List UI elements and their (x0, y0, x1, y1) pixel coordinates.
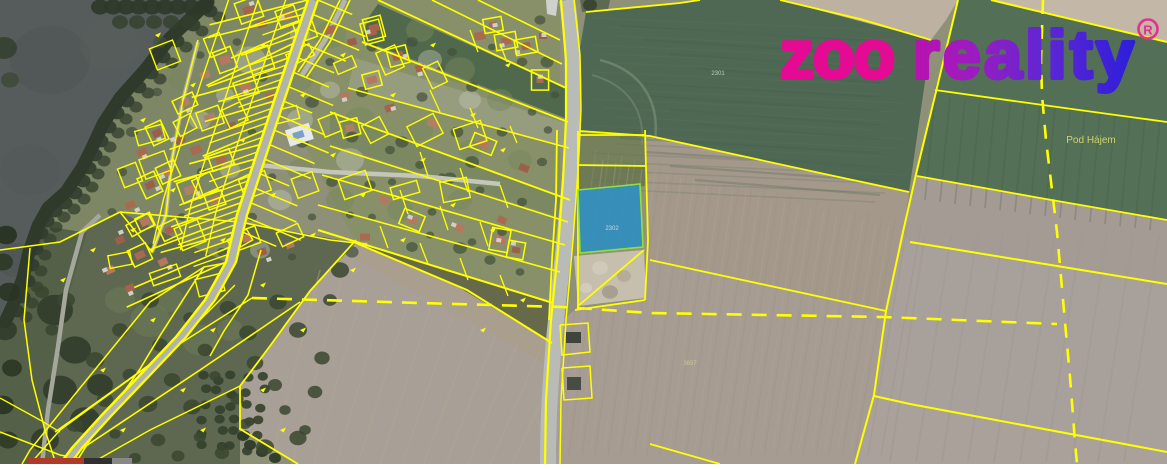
svg-text:3697: 3697 (683, 361, 697, 367)
svg-text:2301: 2301 (711, 71, 725, 77)
svg-text:Pod Hájem: Pod Hájem (1066, 135, 1115, 146)
svg-text:R: R (1143, 23, 1153, 38)
svg-text:zoo: zoo (780, 17, 894, 93)
svg-text:reality: reality (913, 17, 1137, 93)
svg-text:2302: 2302 (605, 226, 619, 232)
